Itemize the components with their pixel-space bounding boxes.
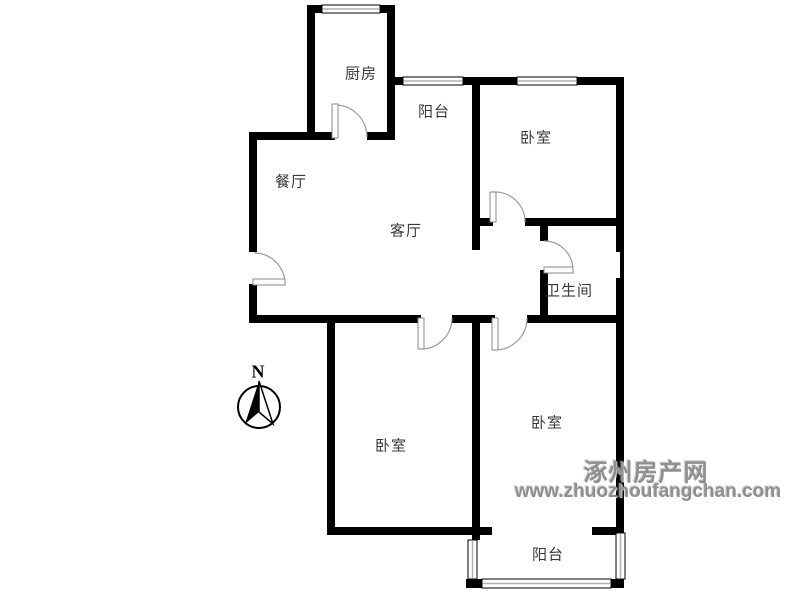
room-label-bedroom-top-right: 卧室 (520, 127, 552, 148)
wall-balcony2-corner-left (466, 579, 482, 588)
window-kitchen-top (322, 5, 380, 13)
door-kitchen (332, 104, 367, 138)
door-bathroom (544, 241, 573, 273)
wall-middle-section-3 (527, 315, 616, 323)
wall-bedroom1-top-right (577, 77, 616, 85)
wall-kitchen-top-corner-right (379, 5, 395, 13)
room-label-balcony-top: 阳台 (418, 101, 450, 122)
wall-right-thin-segment (620, 252, 624, 278)
room-label-balcony-bottom: 阳台 (532, 544, 564, 565)
window-bedroom1-top (517, 77, 577, 85)
compass (238, 381, 280, 428)
wall-kitchen-right (387, 5, 395, 140)
floorplan-image: 厨房 阳台 卧室 餐厅 客厅 卫生间 卧室 卧室 阳台 N 涿州房产网 www.… (0, 0, 800, 600)
wall-mid-vertical-lower (472, 315, 480, 540)
window-balcony2-bottom (482, 579, 611, 588)
compass-north-label: N (252, 362, 265, 383)
wall-right-upper (616, 77, 624, 252)
room-label-bathroom: 卫生间 (545, 280, 593, 301)
wall-dining-top (249, 132, 313, 140)
wall-left-upper (249, 132, 257, 252)
door-entrance (253, 253, 285, 285)
watermark-site-url: www.zhuozhoufangchan.com (515, 481, 781, 503)
door-bedroom-bottom-left (418, 318, 452, 349)
wall-bottom-left-segment (327, 527, 492, 535)
door-bedroom-top-right (490, 192, 525, 222)
room-label-kitchen: 厨房 (345, 63, 377, 84)
room-label-living-room: 客厅 (390, 220, 422, 241)
window-balcony-top (403, 77, 463, 85)
wall-bedroom1-bottom-right (525, 218, 616, 226)
room-label-bedroom-bottom-right: 卧室 (531, 412, 563, 433)
window-balcony2-left (468, 540, 477, 579)
door-bedroom-bottom-right (492, 318, 527, 350)
room-label-bedroom-bottom-left: 卧室 (375, 435, 407, 456)
floorplan-drawing (0, 0, 800, 600)
room-label-dining-room: 餐厅 (275, 171, 307, 192)
wall-balcony-top-right (463, 77, 472, 85)
wall-kitchen-bottom-right (367, 132, 395, 140)
wall-bathroom-left-upper (540, 218, 548, 241)
wall-bedroom2-left (327, 315, 335, 535)
wall-balcony2-corner-right (611, 579, 624, 588)
wall-balcony-top-left (387, 77, 403, 85)
window-balcony2-right (616, 533, 625, 579)
wall-kitchen-left (307, 5, 315, 140)
wall-kitchen-top-corner-left (307, 5, 323, 13)
